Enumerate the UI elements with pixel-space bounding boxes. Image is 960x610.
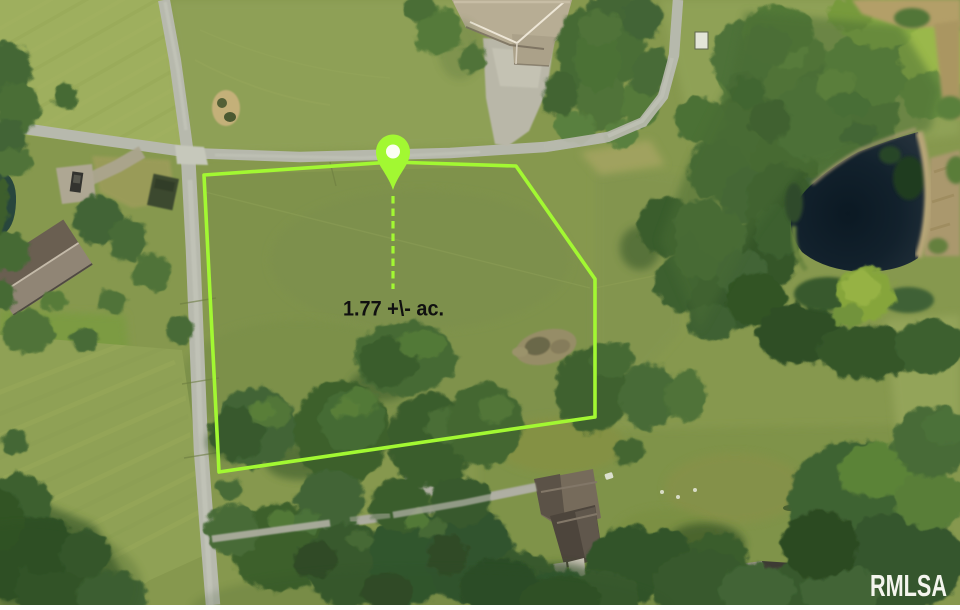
svg-text:RMLSA: RMLSA [870,568,947,603]
svg-text:1.77 +\- ac.: 1.77 +\- ac. [343,298,444,321]
